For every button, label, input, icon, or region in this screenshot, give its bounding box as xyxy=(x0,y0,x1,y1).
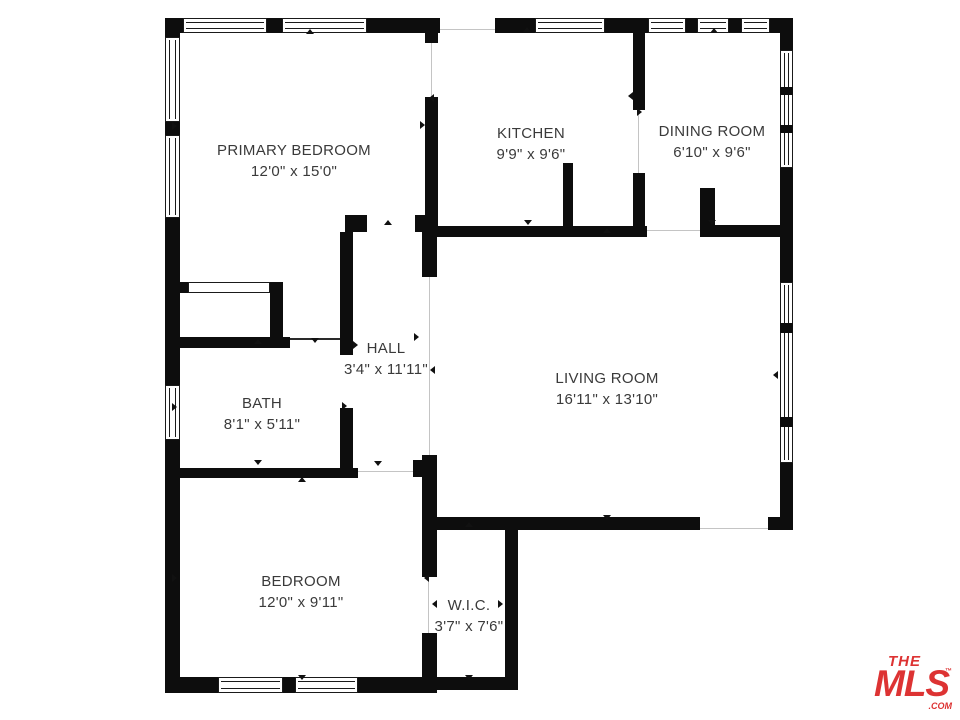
window-mullion xyxy=(780,125,793,133)
wall xyxy=(686,18,697,33)
door-opening xyxy=(638,110,639,173)
room-label-kitchen: KITCHEN 9'9" x 9'6" xyxy=(497,123,566,165)
window xyxy=(183,18,267,33)
window xyxy=(218,677,283,693)
door-opening xyxy=(700,528,768,529)
wall xyxy=(425,97,438,215)
dimension-tick-icon xyxy=(603,515,611,520)
wall xyxy=(165,218,180,385)
dimension-tick-icon xyxy=(172,403,177,411)
window xyxy=(741,18,770,33)
door-opening xyxy=(431,43,432,97)
room-label-dining-room: DINING ROOM 6'10" x 9'6" xyxy=(659,121,766,163)
dimension-tick-icon xyxy=(628,92,633,100)
floor-plan: PRIMARY BEDROOM 12'0" x 15'0" KITCHEN 9'… xyxy=(0,0,960,720)
room-dimensions: 3'7" x 7'6" xyxy=(435,616,504,637)
window xyxy=(780,50,793,168)
room-dimensions: 9'9" x 9'6" xyxy=(497,144,566,165)
window xyxy=(780,282,793,463)
dimension-tick-icon xyxy=(420,121,425,129)
dimension-tick-icon xyxy=(172,122,177,130)
dimension-tick-icon xyxy=(708,220,716,225)
door-opening xyxy=(647,230,700,231)
dimension-tick-icon xyxy=(430,366,435,374)
dimension-tick-icon xyxy=(710,28,718,33)
dimension-tick-icon xyxy=(298,477,306,482)
wall xyxy=(422,455,437,577)
dimension-tick-icon xyxy=(298,675,306,680)
wall xyxy=(780,18,793,50)
wall xyxy=(700,225,793,237)
dimension-tick-icon xyxy=(773,371,778,379)
window-mullion xyxy=(780,323,793,333)
room-dimensions: 6'10" x 9'6" xyxy=(659,142,766,163)
dimension-tick-icon xyxy=(603,228,611,233)
room-dimensions: 8'1" x 5'11" xyxy=(224,414,300,435)
room-label-bedroom: BEDROOM 12'0" x 9'11" xyxy=(258,571,343,613)
logo-com: .COM xyxy=(929,701,953,711)
dimension-tick-icon xyxy=(172,574,177,582)
wall xyxy=(283,677,295,693)
room-dimensions: 12'0" x 15'0" xyxy=(217,161,371,182)
wall xyxy=(345,215,367,232)
wall xyxy=(633,173,645,237)
wall xyxy=(178,282,188,293)
room-label-wic: W.I.C. 3'7" x 7'6" xyxy=(435,595,504,637)
room-name: LIVING ROOM xyxy=(555,370,658,387)
window xyxy=(282,18,367,33)
wall xyxy=(563,163,573,226)
wall xyxy=(422,633,437,690)
window xyxy=(165,37,180,122)
dimension-tick-icon xyxy=(465,675,473,680)
dimension-tick-icon xyxy=(254,339,262,344)
logo-mls: MLS xyxy=(874,663,949,705)
wall xyxy=(165,677,218,693)
room-name: HALL xyxy=(367,340,406,357)
room-label-bath: BATH 8'1" x 5'11" xyxy=(224,393,300,435)
room-name: DINING ROOM xyxy=(659,123,766,140)
themls-logo: THE MLS ™ .COM xyxy=(872,652,954,714)
wall xyxy=(165,337,290,348)
door-opening xyxy=(358,471,413,472)
door-opening xyxy=(428,577,429,633)
room-name: KITCHEN xyxy=(497,125,565,142)
dimension-tick-icon xyxy=(429,94,434,102)
window xyxy=(165,135,180,218)
wall xyxy=(165,468,358,478)
room-name: W.I.C. xyxy=(448,597,491,614)
wall xyxy=(505,521,518,690)
closet-sliding-door xyxy=(188,282,270,293)
dimension-tick-icon xyxy=(424,574,429,582)
room-dimensions: 12'0" x 9'11" xyxy=(258,592,343,613)
wall xyxy=(425,32,438,43)
room-label-hall: HALL 3'4" x 11'11" xyxy=(344,338,428,380)
room-label-primary-bedroom: PRIMARY BEDROOM 12'0" x 15'0" xyxy=(217,140,371,182)
room-name: PRIMARY BEDROOM xyxy=(217,142,371,159)
room-dimensions: 16'11" x 13'10" xyxy=(555,389,658,410)
dimension-tick-icon xyxy=(311,338,319,343)
wall xyxy=(270,282,283,338)
wall xyxy=(430,226,647,237)
door-opening xyxy=(440,29,495,30)
wall xyxy=(367,18,440,33)
wall xyxy=(340,408,353,477)
window xyxy=(648,18,686,33)
wall xyxy=(605,18,648,33)
window-mullion xyxy=(780,417,793,427)
dimension-tick-icon xyxy=(637,108,642,116)
dimension-tick-icon xyxy=(384,220,392,225)
room-name: BEDROOM xyxy=(261,573,341,590)
window xyxy=(165,385,180,440)
window xyxy=(535,18,605,33)
dimension-tick-icon xyxy=(465,522,473,527)
room-label-living-room: LIVING ROOM 16'11" x 13'10" xyxy=(555,368,658,410)
dimension-tick-icon xyxy=(306,29,314,34)
window-mullion xyxy=(780,87,793,95)
wall xyxy=(729,18,741,33)
wall xyxy=(340,232,353,355)
dimension-tick-icon xyxy=(524,220,532,225)
dimension-tick-icon xyxy=(254,460,262,465)
room-name: BATH xyxy=(242,395,282,412)
wall xyxy=(633,32,645,110)
wall xyxy=(165,18,180,37)
wall xyxy=(413,460,424,477)
dimension-tick-icon xyxy=(523,27,531,32)
dimension-tick-icon xyxy=(374,461,382,466)
dimension-tick-icon xyxy=(342,402,347,410)
wall xyxy=(267,18,282,33)
room-dimensions: 3'4" x 11'11" xyxy=(344,359,428,380)
logo-trademark-icon: ™ xyxy=(945,668,952,675)
wall xyxy=(768,517,793,530)
